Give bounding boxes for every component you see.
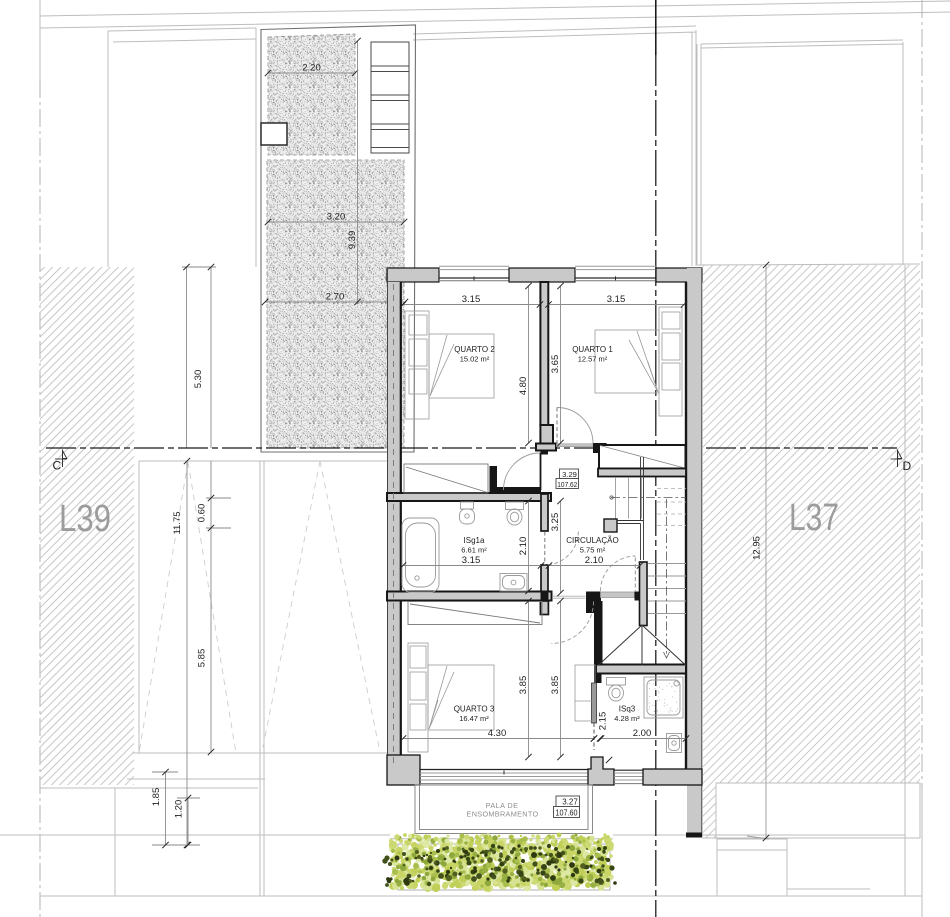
- svg-text:1.20: 1.20: [174, 800, 185, 819]
- svg-text:CIRCULAÇÃO: CIRCULAÇÃO: [566, 536, 618, 545]
- svg-text:12.57 m²: 12.57 m²: [578, 355, 608, 364]
- svg-text:3.27: 3.27: [562, 797, 578, 806]
- svg-text:107.62: 107.62: [557, 480, 577, 489]
- svg-text:5.30: 5.30: [193, 370, 204, 389]
- svg-text:3.15: 3.15: [462, 294, 481, 305]
- svg-text:4.30: 4.30: [488, 728, 507, 739]
- svg-text:16.47 m²: 16.47 m²: [459, 714, 489, 723]
- svg-text:2.20: 2.20: [302, 63, 321, 74]
- svg-text:L39: L39: [59, 498, 111, 540]
- svg-text:3.65: 3.65: [550, 355, 561, 374]
- svg-text:2.10: 2.10: [585, 555, 604, 566]
- svg-text:3.85: 3.85: [518, 676, 529, 695]
- svg-text:ISq3: ISq3: [619, 705, 636, 714]
- svg-text:2.15: 2.15: [598, 712, 609, 731]
- svg-text:0.60: 0.60: [197, 504, 208, 523]
- svg-text:3.15: 3.15: [462, 555, 481, 566]
- svg-text:QUARTO 2: QUARTO 2: [454, 345, 495, 354]
- svg-text:ISg1a: ISg1a: [464, 536, 485, 545]
- svg-text:3.20: 3.20: [327, 212, 346, 223]
- svg-text:D: D: [903, 459, 912, 473]
- svg-text:QUARTO 3: QUARTO 3: [454, 705, 495, 714]
- svg-text:12.95: 12.95: [752, 536, 763, 560]
- svg-text:1.85: 1.85: [151, 788, 162, 807]
- svg-text:3.15: 3.15: [607, 294, 626, 305]
- svg-text:2.10: 2.10: [518, 537, 529, 556]
- svg-text:11.75: 11.75: [172, 511, 183, 534]
- svg-text:107.60: 107.60: [556, 808, 578, 817]
- svg-text:3.85: 3.85: [550, 676, 561, 695]
- svg-text:3.25: 3.25: [550, 513, 561, 532]
- svg-text:2.00: 2.00: [633, 728, 652, 739]
- svg-text:QUARTO 1: QUARTO 1: [572, 345, 613, 354]
- svg-text:5.85: 5.85: [197, 649, 208, 668]
- svg-text:4.28 m²: 4.28 m²: [614, 714, 640, 723]
- svg-text:ENSOMBRAMENTO: ENSOMBRAMENTO: [467, 810, 539, 819]
- svg-text:C: C: [53, 459, 62, 473]
- svg-text:4.80: 4.80: [518, 377, 529, 396]
- svg-text:3.29: 3.29: [562, 470, 577, 479]
- svg-text:6.61 m²: 6.61 m²: [461, 546, 487, 555]
- svg-text:9.39: 9.39: [347, 231, 358, 250]
- svg-text:5.75 m²: 5.75 m²: [580, 546, 606, 555]
- svg-text:L37: L37: [789, 497, 839, 539]
- svg-text:2.70: 2.70: [326, 292, 345, 303]
- svg-text:15.02 m²: 15.02 m²: [460, 355, 490, 364]
